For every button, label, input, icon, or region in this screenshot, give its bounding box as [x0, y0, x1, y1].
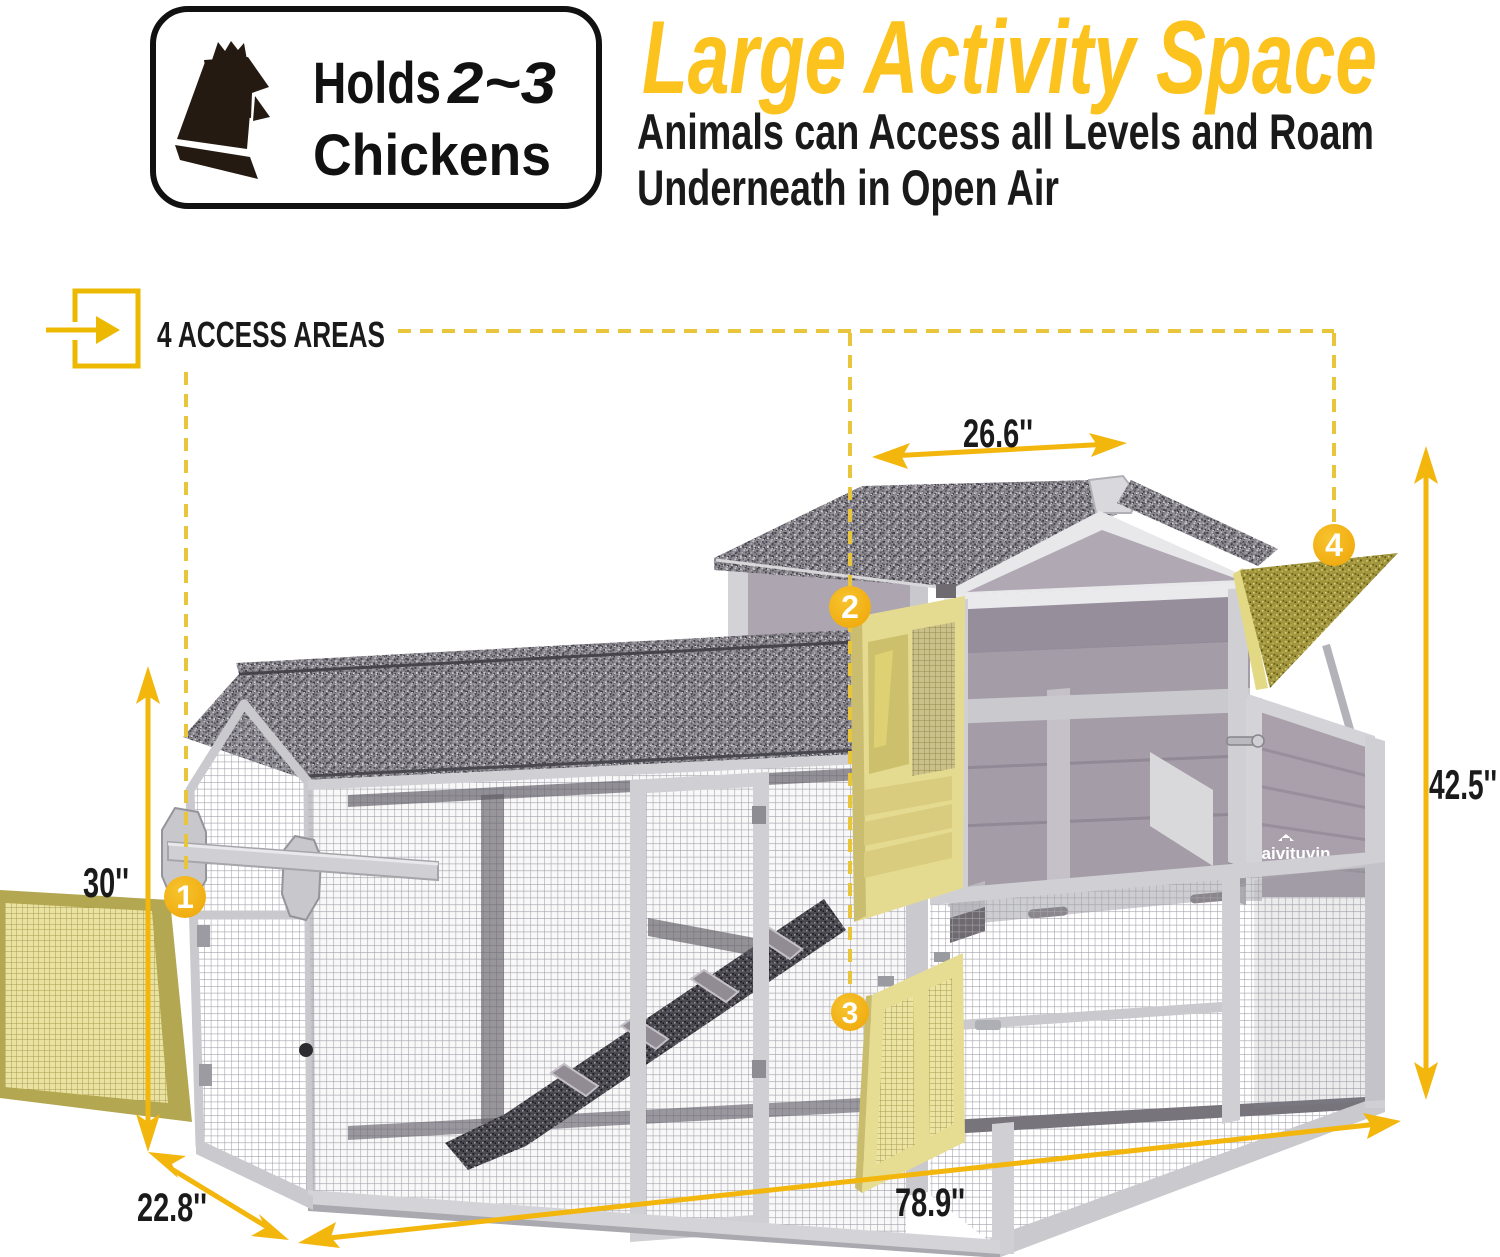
- svg-text:78.9'': 78.9'': [895, 1181, 965, 1225]
- svg-text:Animals can Access all Levels: Animals can Access all Levels and Roam: [637, 104, 1374, 160]
- svg-text:22.8'': 22.8'': [137, 1186, 207, 1230]
- svg-text:30'': 30'': [83, 859, 129, 906]
- svg-text:1: 1: [176, 879, 194, 915]
- svg-text:Large Activity Space: Large Activity Space: [642, 0, 1377, 116]
- svg-text:Chickens: Chickens: [313, 123, 551, 188]
- svg-text:26.6'': 26.6'': [963, 412, 1033, 456]
- svg-text:2~3: 2~3: [447, 51, 556, 116]
- svg-text:3: 3: [842, 997, 859, 1030]
- svg-text:2: 2: [841, 589, 859, 625]
- svg-text:42.5'': 42.5'': [1429, 761, 1497, 808]
- svg-text:4: 4: [1325, 527, 1343, 563]
- svg-text:4 ACCESS AREAS: 4 ACCESS AREAS: [157, 314, 385, 355]
- svg-text:Underneath in Open Air: Underneath in Open Air: [637, 160, 1059, 216]
- svg-text:Holds: Holds: [313, 51, 441, 116]
